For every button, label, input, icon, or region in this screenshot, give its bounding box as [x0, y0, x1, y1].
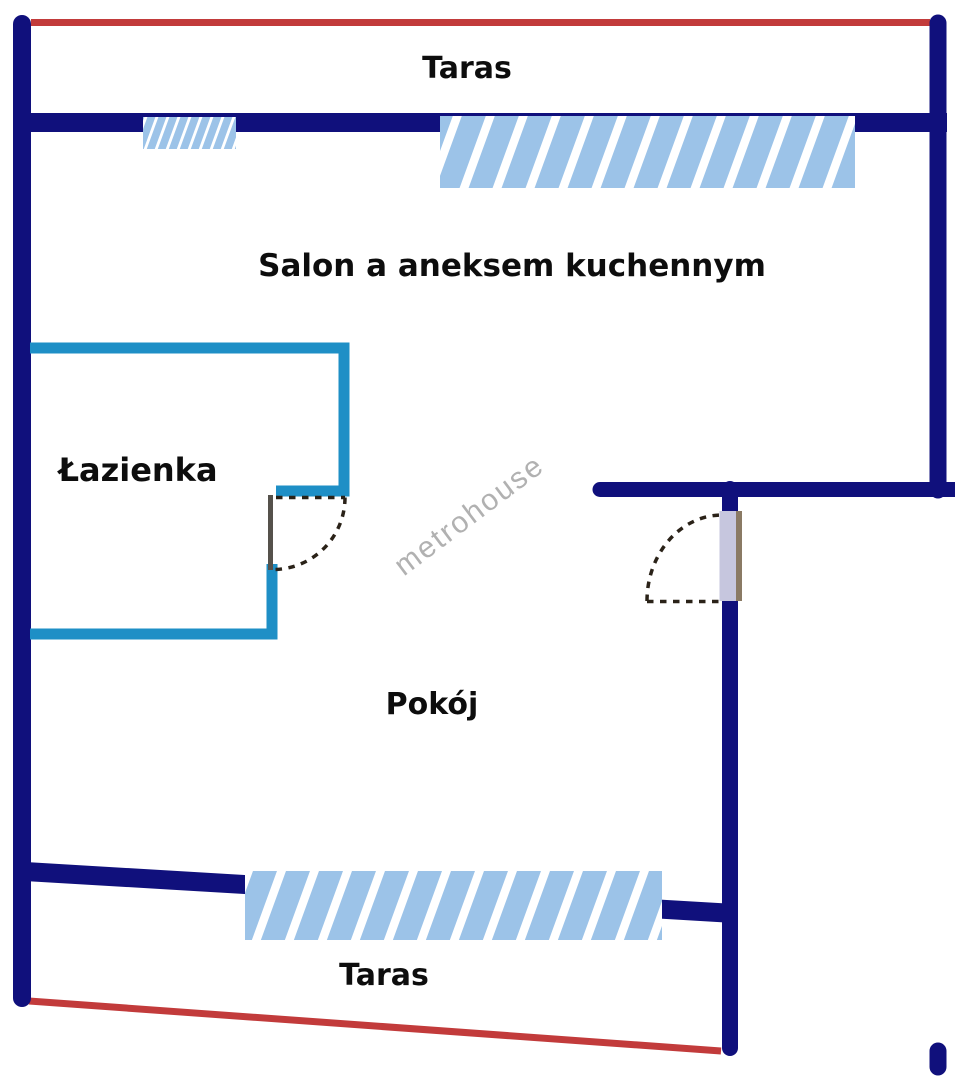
floorplan-image: Taras Salon a aneksem kuchennym Łazienka… [0, 0, 955, 1080]
terrace-label-bottom: Taras [339, 958, 429, 993]
room-door-leaf-edge [736, 511, 742, 601]
room-label-lazienka: Łazienka [56, 451, 217, 489]
window-top-small [143, 117, 236, 149]
room-door-leaf [720, 511, 737, 601]
watermark-text: metrohouse [388, 449, 550, 583]
room-label-salon: Salon a aneksem kuchennym [258, 248, 766, 284]
bathroom-door-swing-arc [273, 498, 345, 570]
room-door-swing-arc [647, 515, 722, 601]
terrace-label-top: Taras [422, 51, 512, 86]
floorplan-svg: Taras Salon a aneksem kuchennym Łazienka… [0, 0, 955, 1080]
terrace-line-bottom [29, 1001, 721, 1051]
room-label-pokoj: Pokój [386, 687, 479, 722]
window-top-large [440, 116, 855, 188]
window-bottom [245, 871, 662, 940]
bathroom-wall-lower [30, 564, 272, 634]
